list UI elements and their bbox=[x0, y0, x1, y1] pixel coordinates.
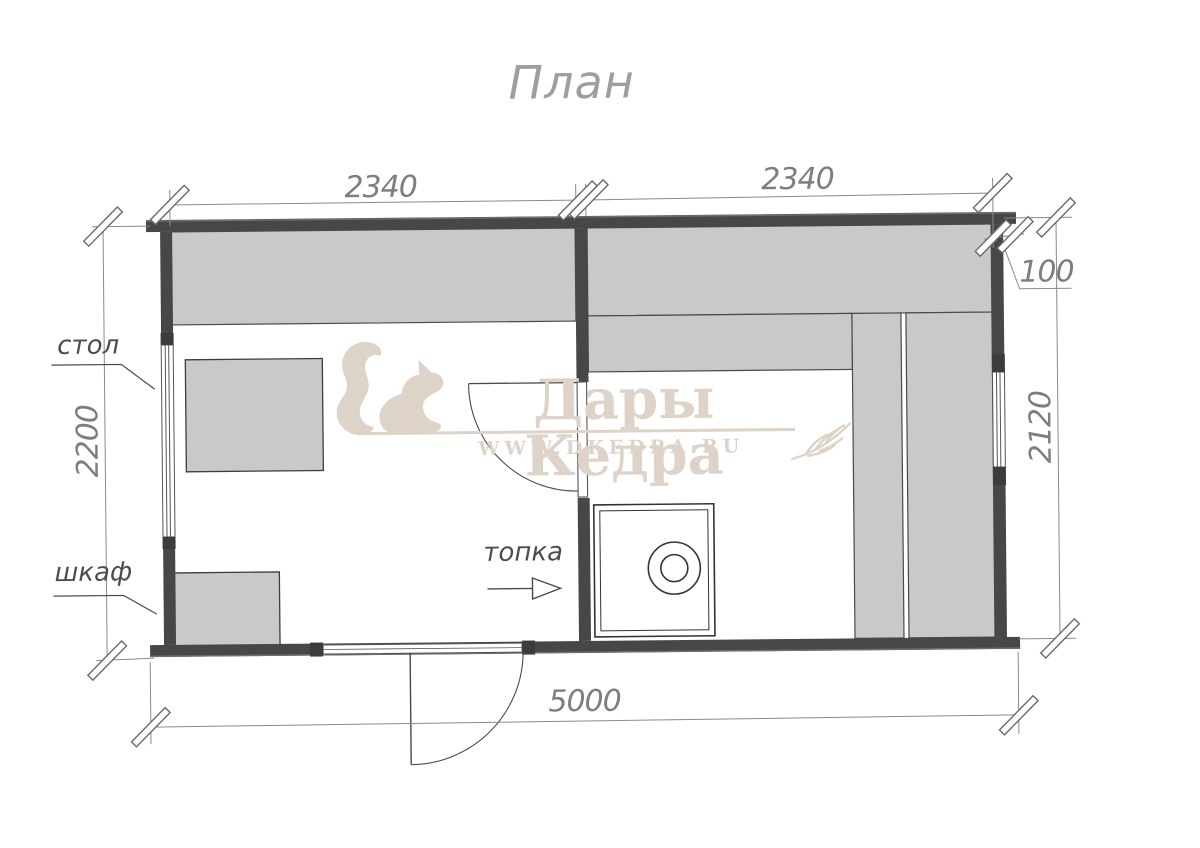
wall-partition-bottom bbox=[578, 498, 591, 641]
cabinet-leader-line bbox=[54, 595, 157, 615]
bench-room2-top bbox=[587, 224, 992, 316]
entrance-door-swing-arc bbox=[410, 651, 524, 765]
floor-plan-drawing bbox=[0, 0, 1200, 848]
dim-top-left: 2340 bbox=[320, 169, 440, 205]
entrance-door-leaf bbox=[410, 653, 411, 765]
bench-room2-right-column bbox=[906, 312, 995, 638]
bench-room2-mid bbox=[588, 313, 853, 372]
window-right bbox=[992, 354, 1006, 485]
stove-inner-circle bbox=[661, 555, 688, 582]
label-firebox: топка bbox=[453, 537, 593, 568]
dim-left-depth: 2200 bbox=[70, 381, 106, 501]
entrance-door bbox=[310, 640, 536, 765]
cabinet bbox=[174, 572, 280, 648]
stove bbox=[594, 504, 715, 637]
partition-door-leaf bbox=[469, 383, 577, 384]
wall-partition-top bbox=[575, 228, 588, 382]
dim-right-depth: 2120 bbox=[1023, 367, 1059, 487]
label-table: стол bbox=[28, 330, 148, 361]
page-title: План bbox=[471, 54, 672, 110]
dim-total-width: 5000 bbox=[514, 683, 654, 719]
firebox-arrow-icon bbox=[487, 578, 560, 600]
window-left bbox=[161, 333, 176, 549]
partition-door bbox=[469, 382, 588, 498]
dim-top-right: 2340 bbox=[737, 161, 857, 197]
bench-room1-top bbox=[171, 228, 576, 325]
floor-plan-sheet: План 2340 2340 100 2200 2120 5000 стол ш… bbox=[0, 0, 1200, 848]
bench-room2-left-column bbox=[852, 313, 904, 638]
partition-door-swing-arc bbox=[469, 383, 578, 492]
dim-wall-offset: 100 bbox=[1006, 254, 1086, 290]
label-cabinet: шкаф bbox=[33, 557, 153, 588]
table bbox=[185, 358, 323, 471]
